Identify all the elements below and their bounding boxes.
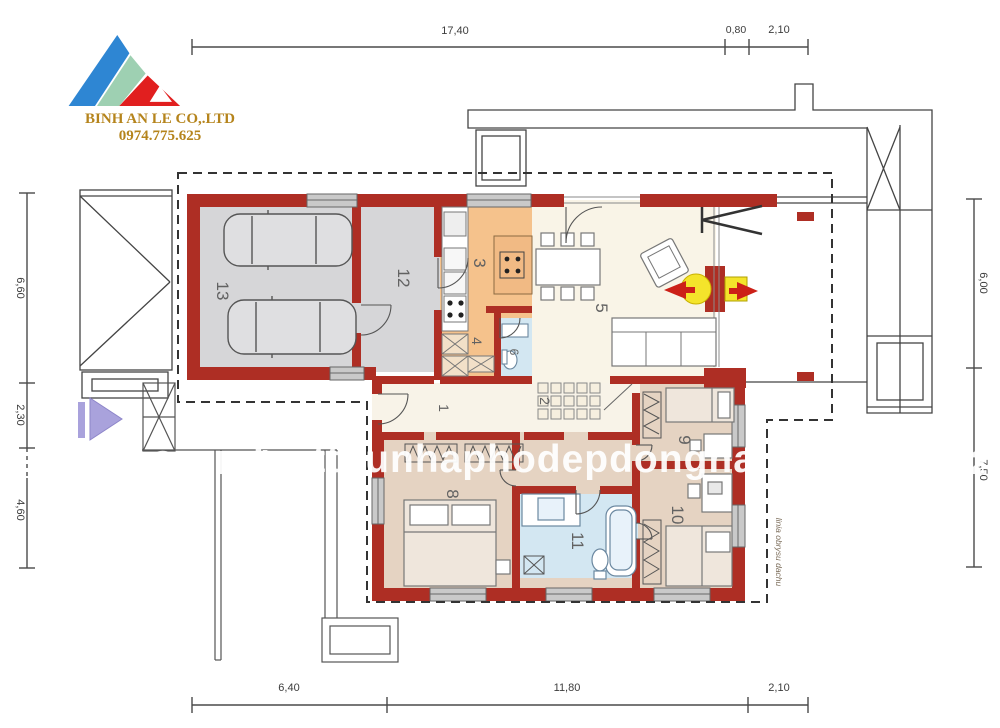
dim-left-230: 2,30 bbox=[14, 404, 26, 425]
porch-walkway bbox=[142, 383, 398, 662]
dim-bottom-640: 6,40 bbox=[278, 682, 299, 694]
logo-triangle-icon bbox=[65, 33, 205, 109]
floor-plan-page: BINH AN LE CO,.LTD 0974.775.625 Co.,Ltd … bbox=[0, 0, 1000, 728]
room-label-kitchen: 3 bbox=[469, 258, 489, 267]
room-label-bedroom8: 8 bbox=[442, 489, 462, 498]
roof-line-annotation: linia obrysu dachu bbox=[774, 518, 784, 587]
company-logo: BINH AN LE CO,.LTD 0974.775.625 bbox=[43, 33, 233, 148]
room-label-bathroom: 11 bbox=[567, 532, 587, 550]
dim-top-080: 0,80 bbox=[726, 24, 746, 36]
bedroom8-furniture bbox=[404, 500, 510, 586]
room-label-entry: 1 bbox=[436, 404, 452, 412]
pergola bbox=[80, 190, 172, 398]
dim-left-660: 6,60 bbox=[14, 277, 26, 298]
dim-right-600: 6,00 bbox=[977, 272, 989, 293]
logo-phone: 0974.775.625 bbox=[65, 128, 255, 145]
room-label-hall: 2 bbox=[537, 397, 553, 405]
skylight bbox=[476, 130, 526, 186]
toilet bbox=[592, 549, 608, 571]
dim-top-210: 2,10 bbox=[768, 24, 789, 36]
room-label-garage: 13 bbox=[212, 282, 232, 301]
dining-table bbox=[536, 249, 600, 285]
logo-company-name: BINH AN LE CO,.LTD bbox=[65, 111, 255, 128]
dim-left-460: 4,60 bbox=[14, 499, 26, 520]
room-label-pantry: 4 bbox=[469, 337, 485, 345]
dim-bottom-210: 2,10 bbox=[768, 682, 789, 694]
watermark-right: - 0974.775.625 bbox=[772, 444, 1000, 482]
room-label-utility: 12 bbox=[393, 269, 413, 288]
room-label-bedroom10: 10 bbox=[667, 506, 687, 525]
dim-bottom-1180: 11,80 bbox=[554, 682, 581, 694]
room-label-living: 5 bbox=[591, 303, 611, 312]
dim-top-1740: 17,40 bbox=[441, 25, 469, 37]
sofa bbox=[612, 318, 716, 366]
room-label-wc: 6 bbox=[507, 349, 521, 356]
dining-set bbox=[536, 233, 600, 300]
entrance-arrow-icon bbox=[78, 398, 122, 440]
